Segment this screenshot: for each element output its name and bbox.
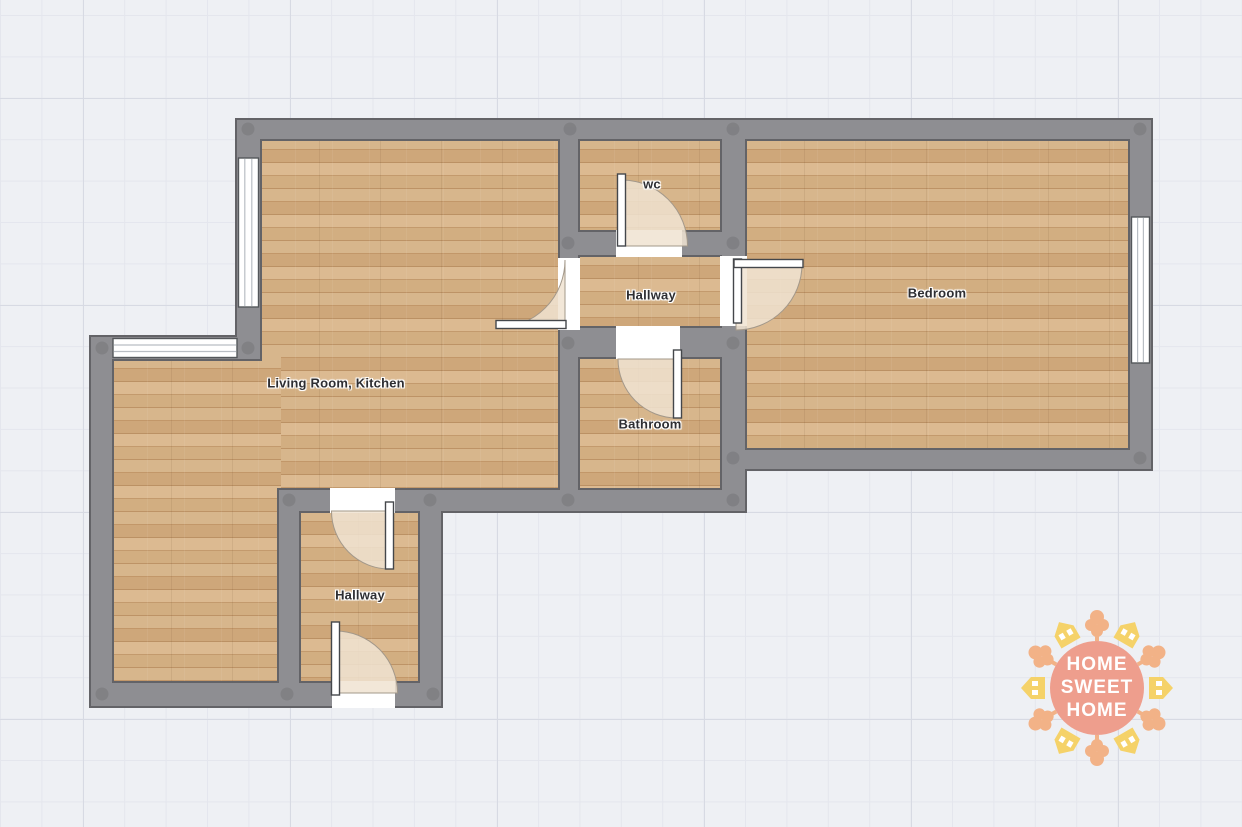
room-floor-living-room-lower[interactable]: [110, 356, 281, 685]
room-label-bathroom: Bathroom: [619, 417, 682, 432]
watermark-line-1: HOME: [1067, 654, 1128, 675]
room-label-hallway-center: Hallway: [626, 288, 676, 303]
window-bedroom: [1132, 217, 1150, 363]
watermark-line-2: SWEET: [1061, 677, 1134, 698]
window-living-left: [239, 158, 259, 307]
room-label-hallway-lower: Hallway: [335, 588, 385, 603]
opening-bathroom: [616, 326, 680, 359]
floor-plan-canvas[interactable]: wc Hallway Bedroom Living Room, Kitchen …: [0, 0, 1242, 827]
watermark-line-3: HOME: [1067, 700, 1128, 721]
room-label-living-room: Living Room, Kitchen: [267, 376, 405, 391]
opening-entry: [332, 681, 395, 708]
window-living-step: [113, 339, 237, 358]
room-label-wc: wc: [643, 177, 661, 192]
door-frame-bedroom: [734, 259, 742, 323]
home-sweet-home-watermark: HOME SWEET HOME: [1012, 603, 1182, 773]
room-label-bedroom: Bedroom: [908, 286, 966, 301]
room-floor-living-room-upper[interactable]: [258, 137, 562, 492]
